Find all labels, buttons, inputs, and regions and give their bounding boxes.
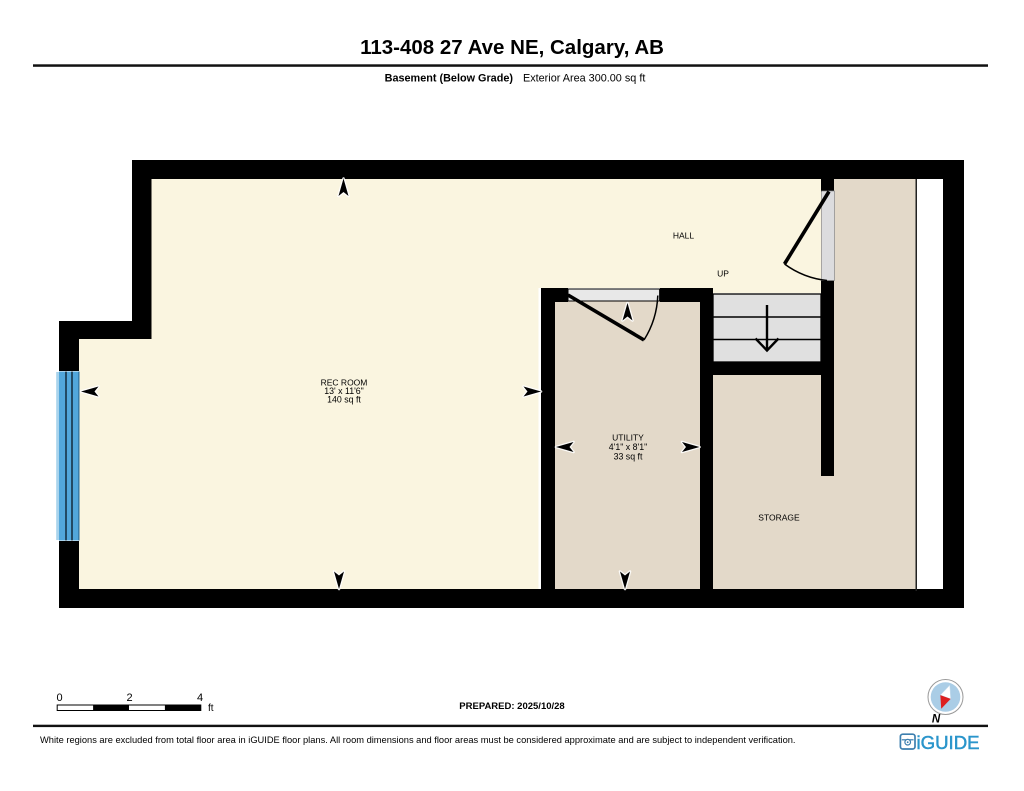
svg-text:HALL: HALL: [673, 231, 695, 241]
svg-text:4'1" x 8'1": 4'1" x 8'1": [609, 442, 647, 452]
svg-text:Basement (Below Grade)Exterior: Basement (Below Grade)Exterior Area 300.…: [385, 73, 646, 85]
svg-text:PREPARED: 2025/10/28: PREPARED: 2025/10/28: [459, 701, 564, 712]
svg-text:ft: ft: [208, 703, 214, 714]
svg-text:iGUIDE: iGUIDE: [917, 732, 980, 753]
svg-text:0: 0: [56, 692, 62, 704]
svg-text:140 sq ft: 140 sq ft: [327, 395, 361, 405]
svg-text:STORAGE: STORAGE: [758, 513, 800, 523]
svg-text:4: 4: [197, 692, 203, 704]
svg-text:2: 2: [126, 692, 132, 704]
svg-text:UP: UP: [717, 269, 729, 279]
svg-text:113-408 27 Ave NE, Calgary, AB: 113-408 27 Ave NE, Calgary, AB: [360, 36, 664, 59]
svg-text:N: N: [932, 714, 941, 726]
svg-text:33 sq ft: 33 sq ft: [614, 452, 643, 462]
svg-text:White regions are excluded fro: White regions are excluded from total fl…: [40, 735, 796, 745]
svg-text:UTILITY: UTILITY: [612, 433, 644, 443]
